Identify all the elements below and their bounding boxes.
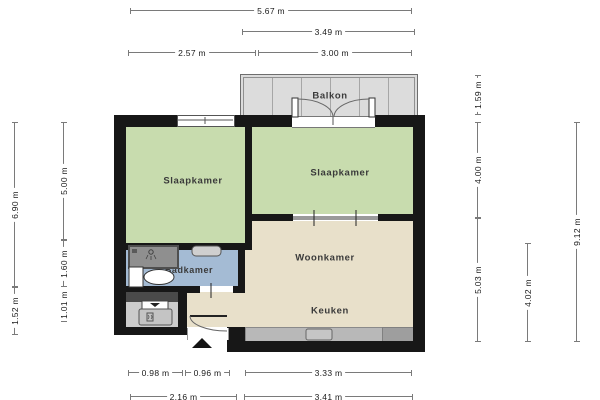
floorplan-canvas: Balkon Slaapkamer Slaapkamer Badkamer Wo… — [0, 0, 600, 400]
balcony-door-threshold — [292, 116, 375, 128]
storage-floor — [126, 302, 178, 327]
dim-left-lower-depth: 1.52 m — [14, 287, 15, 335]
dim-balcony-width: 3.49 m — [242, 31, 415, 32]
kitchen-label: Keuken — [311, 306, 349, 317]
balcony-label: Balkon — [312, 91, 347, 102]
bathroom-label: Badkamer — [165, 265, 213, 275]
wall-bottom-main — [227, 341, 425, 352]
wall-ensuite-b — [378, 214, 413, 221]
entrance-threshold — [187, 328, 229, 340]
dim-bottom-left-width: 2.16 m — [130, 396, 237, 397]
wall-ensuite-a — [252, 214, 293, 221]
dim-bedroom-left-width: 2.57 m — [128, 52, 256, 53]
wall-storage-right — [178, 292, 187, 335]
wall-bottom-left — [114, 327, 187, 335]
bedroom-left-label: Slaapkamer — [163, 176, 222, 187]
wall-bathroom-bottom-b — [233, 286, 245, 293]
dim-depth-total: 9.12 m — [576, 122, 577, 342]
dim-storage-depth: 1.01 m — [63, 288, 64, 322]
wall-right — [413, 115, 425, 352]
dim-living-depth: 5.03 m — [477, 218, 478, 342]
dim-bedroom-right-depth: 4.00 m — [477, 122, 478, 218]
wall-bedroom-divider — [245, 127, 252, 250]
dim-kitchen-depth: 4.02 m — [527, 243, 528, 342]
hall-floor — [187, 292, 245, 327]
wall-bathroom-top — [126, 243, 252, 250]
storage-top-band — [126, 292, 178, 302]
bedroom-right-label: Slaapkamer — [310, 168, 369, 179]
living-room-floor-west — [245, 250, 252, 327]
dim-width-total: 5.67 m — [130, 10, 412, 11]
dim-kitchen-width: 3.33 m — [245, 372, 412, 373]
bedroom-left-window — [177, 115, 235, 127]
wall-bottom-jog — [227, 327, 245, 341]
dim-bedroom-left-depth: 5.00 m — [63, 122, 64, 240]
wall-left — [114, 115, 126, 335]
dim-storage-width: 0.98 m — [128, 372, 183, 373]
dim-bedroom-right-width: 3.00 m — [258, 52, 412, 53]
dim-left-upper-depth: 6.90 m — [14, 122, 15, 287]
dim-entrance-width: 0.96 m — [185, 372, 230, 373]
wall-top-b — [235, 115, 292, 127]
dim-bottom-right-width: 3.41 m — [244, 396, 413, 397]
kitchen-appliance-block — [382, 327, 414, 342]
dim-balcony-depth: 1.59 m — [477, 75, 478, 115]
ensuite-opening — [293, 216, 378, 220]
dim-bathroom-depth: 1.60 m — [63, 240, 64, 287]
living-room-label: Woonkamer — [295, 253, 355, 264]
